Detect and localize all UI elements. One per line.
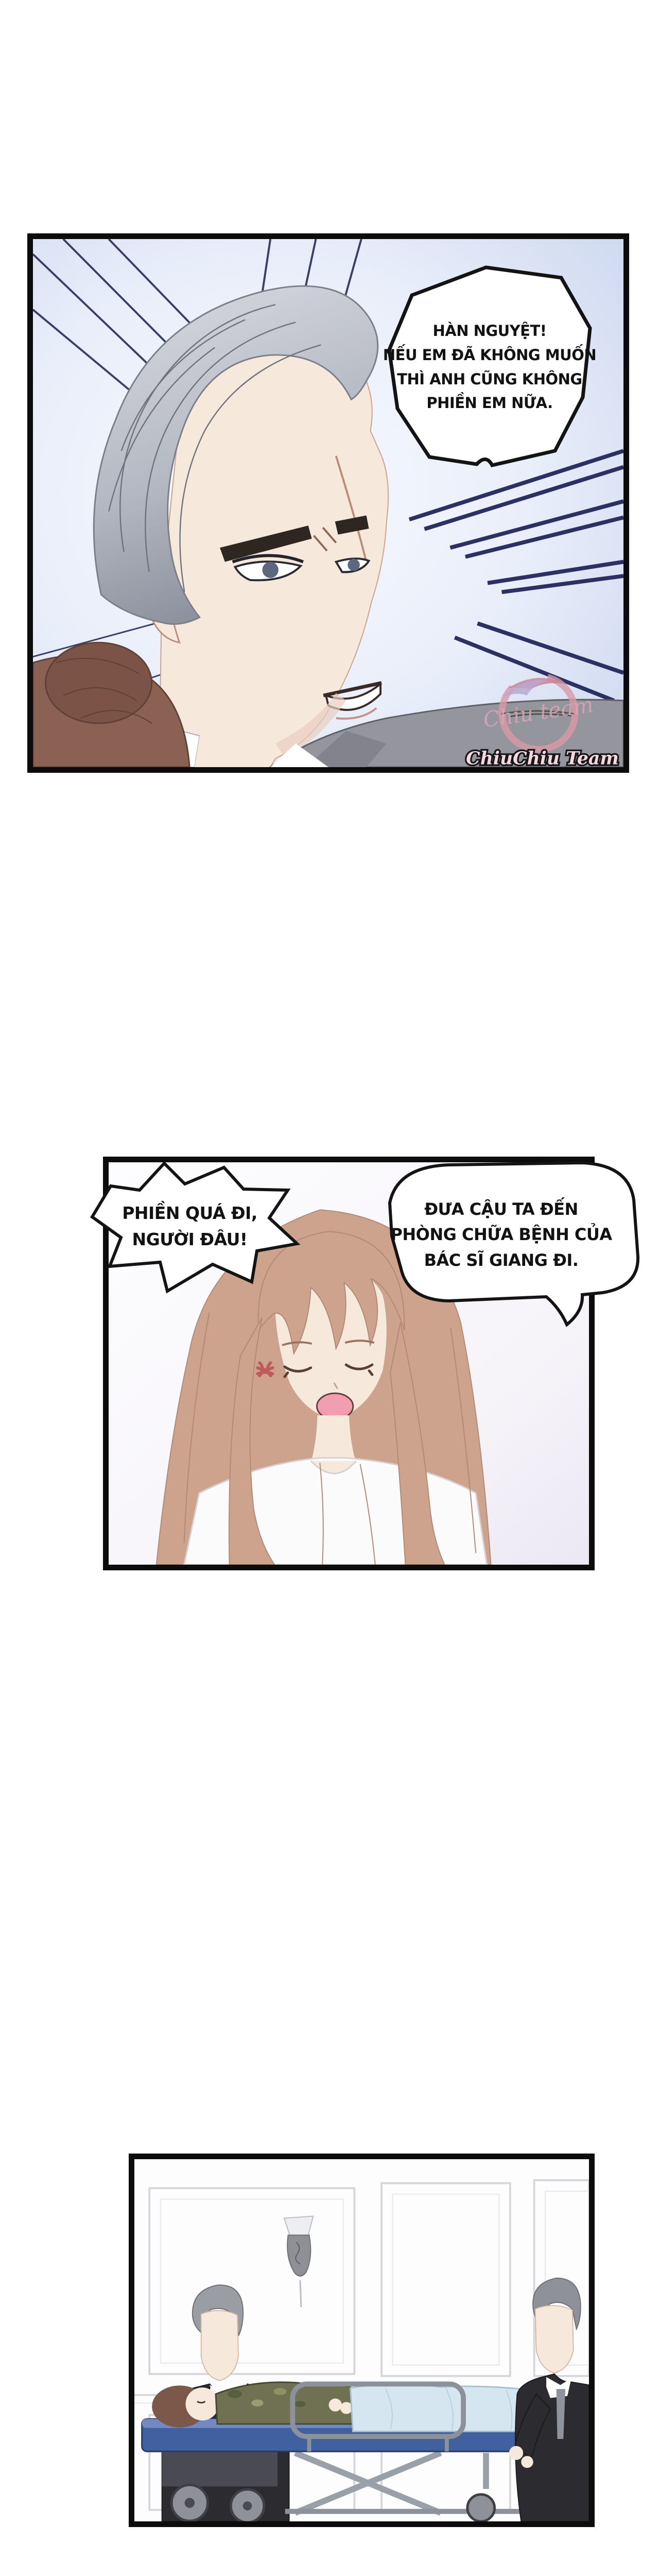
bubble-line: PHIỀN QUÁ ĐI,: [122, 1200, 257, 1226]
bubble-line: PHÒNG CHỮA BỆNH CỦA: [390, 1222, 612, 1248]
chiuchiu-team-watermark: Chiu team ChiuChiu Team: [472, 666, 613, 776]
panel-3: [129, 2154, 595, 2527]
man-right-hand: [521, 2456, 533, 2468]
man-right-face: [535, 2306, 574, 2373]
man-left-face: [201, 2311, 238, 2381]
woman-neck: [311, 1415, 356, 1463]
speech-bubble-phong-chua-benh: ĐƯA CẬU TA ĐẾN PHÒNG CHỮA BỆNH CỦA BÁC S…: [361, 1159, 641, 1329]
bubble-text: PHIỀN QUÁ ĐI, NGƯỜI ĐÂU!: [122, 1200, 257, 1252]
bubble-line: BÁC SĨ GIANG ĐI.: [390, 1248, 612, 1274]
watermark-logo-icon: Chiu team ChiuChiu Team: [472, 666, 613, 776]
comic-page: { "page": { "width": 1280, "height": 745…: [0, 0, 659, 2576]
bubble-text: HÀN NGUYỆT! NẾU EM ĐÃ KHÔNG MUỐN THÌ ANH…: [383, 319, 596, 416]
bubble-line: PHIỀN EM NỮA.: [383, 391, 596, 415]
watermark-script: Chiu team: [482, 692, 595, 732]
bubble-line: THÌ ANH CŨNG KHÔNG: [383, 367, 596, 392]
bubble-line: NGƯỜI ĐÂU!: [122, 1226, 257, 1252]
stretcher-base-box: [162, 2451, 278, 2486]
bubble-line: NẾU EM ĐÃ KHÔNG MUỐN: [383, 343, 596, 367]
bubble-line: HÀN NGUYỆT!: [383, 319, 596, 343]
man-right-hand: [509, 2446, 523, 2460]
speech-bubble-phien-qua: PHIỀN QUÁ ĐI, NGƯỜI ĐÂU!: [78, 1156, 302, 1296]
bubble-text: ĐƯA CẬU TA ĐẾN PHÒNG CHỮA BỆNH CỦA BÁC S…: [390, 1197, 612, 1274]
panel-1: HÀN NGUYỆT! NẾU EM ĐÃ KHÔNG MUỐN THÌ ANH…: [27, 233, 629, 773]
patient-hand: [329, 2398, 342, 2411]
patient-face: [186, 2387, 219, 2420]
panel-2: PHIỀN QUÁ ĐI, NGƯỜI ĐÂU! ĐƯA CẬU TA ĐẾN …: [103, 1157, 595, 1570]
speech-bubble-han-nguyet: HÀN NGUYỆT! NẾU EM ĐÃ KHÔNG MUỐN THÌ ANH…: [385, 262, 594, 472]
watermark-name: ChiuChiu Team: [466, 749, 619, 769]
bubble-line: ĐƯA CẬU TA ĐẾN: [390, 1197, 612, 1223]
panel-3-artwork: [134, 2159, 589, 2521]
